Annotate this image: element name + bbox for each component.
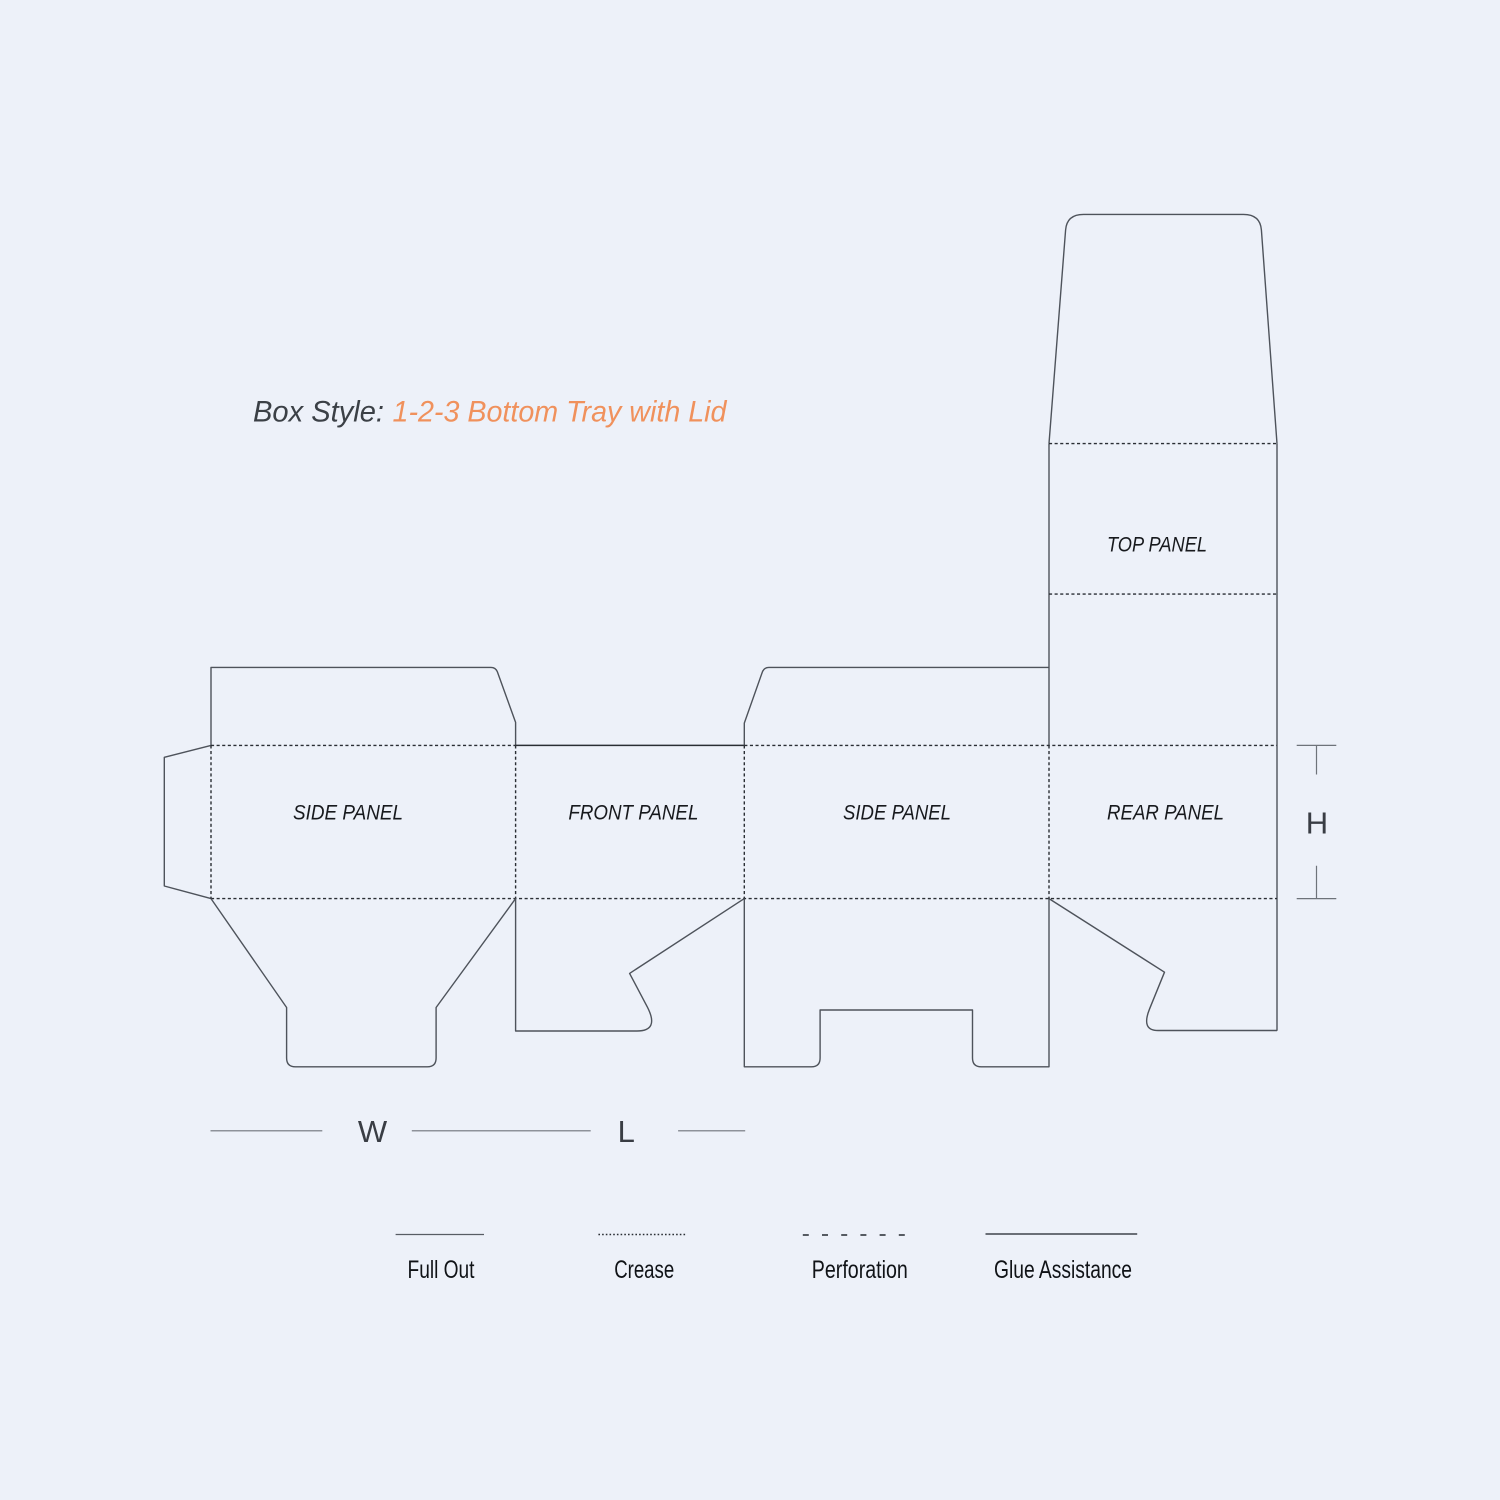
svg-text:FRONT PANEL: FRONT PANEL xyxy=(568,801,698,824)
svg-text:1-2-3 Bottom Tray with Lid: 1-2-3 Bottom Tray with Lid xyxy=(393,395,728,428)
svg-text:L: L xyxy=(618,1114,635,1149)
svg-text:Glue Assistance: Glue Assistance xyxy=(994,1256,1132,1284)
svg-text:Perforation: Perforation xyxy=(812,1256,908,1284)
svg-text:SIDE PANEL: SIDE PANEL xyxy=(843,801,951,824)
svg-text:TOP PANEL: TOP PANEL xyxy=(1107,534,1207,557)
svg-text:Full Out: Full Out xyxy=(408,1256,475,1284)
svg-text:W: W xyxy=(358,1114,388,1149)
svg-text:H: H xyxy=(1306,805,1328,840)
svg-text:REAR PANEL: REAR PANEL xyxy=(1107,801,1224,824)
svg-text:Box Style:: Box Style: xyxy=(253,395,384,428)
svg-text:Crease: Crease xyxy=(614,1256,674,1284)
svg-text:SIDE PANEL: SIDE PANEL xyxy=(293,801,403,824)
